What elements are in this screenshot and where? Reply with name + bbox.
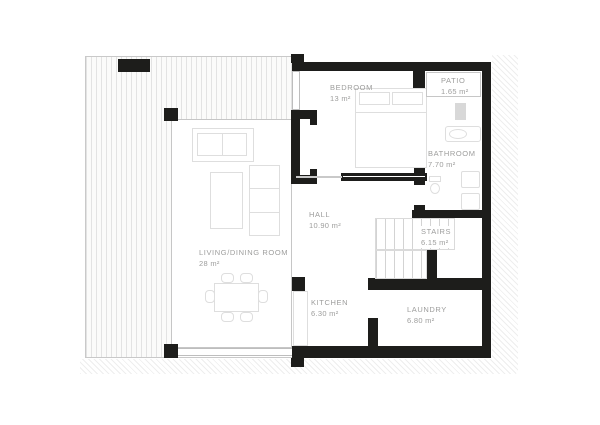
shelf: [249, 165, 280, 236]
wall-bedroom-left: [291, 110, 300, 184]
room-area: 6.30 m²: [311, 308, 348, 319]
kitchen-counter: [293, 291, 308, 346]
floor-plan: LIVING/DINING ROOM 28 m² BEDROOM 13 m² P…: [0, 0, 600, 425]
room-area: 13 m²: [330, 93, 373, 104]
sofa-cushion-divider: [222, 133, 223, 156]
room-area: 6.80 m²: [407, 315, 447, 326]
ground-hatch-right: [492, 55, 518, 373]
dining-chair: [221, 312, 234, 322]
living-room-south-window: [178, 348, 292, 356]
dining-chair: [221, 273, 234, 283]
wall-niche-tip: [310, 169, 317, 175]
sink: [461, 193, 480, 210]
deck-edge: [85, 357, 293, 358]
room-label-bathroom: BATHROOM 7.70 m²: [428, 148, 476, 170]
dining-chair: [240, 312, 253, 322]
deck-column: [164, 108, 178, 121]
sliding-door-track: [296, 176, 342, 178]
wall-right: [482, 62, 491, 358]
sink: [461, 171, 480, 188]
stairs-treads-lower: [375, 250, 427, 279]
deck-edge: [85, 56, 293, 57]
dining-chair: [240, 273, 253, 283]
room-name: STAIRS: [421, 226, 451, 237]
room-name: LIVING/DINING ROOM: [199, 247, 288, 258]
room-label-hall: HALL 10.90 m²: [309, 209, 341, 231]
room-label-bedroom: BEDROOM 13 m²: [330, 82, 373, 104]
wall-kitchen-column: [292, 277, 305, 291]
wall-niche-tip: [310, 119, 317, 125]
deck-column: [164, 344, 178, 358]
room-label-patio: PATIO 1.65 m²: [441, 75, 469, 97]
wall-bottom: [292, 346, 491, 358]
room-label-stairs: STAIRS 6.15 m²: [419, 226, 453, 248]
toilet-bowl: [430, 183, 440, 194]
room-area: 10.90 m²: [309, 220, 341, 231]
room-name: LAUNDRY: [407, 304, 447, 315]
wall-bedroom-left-arm: [291, 110, 317, 119]
rug: [210, 172, 243, 229]
bed-pillow: [392, 92, 423, 105]
room-label-kitchen: KITCHEN 6.30 m²: [311, 297, 348, 319]
shelf-divider: [249, 212, 280, 213]
wall-bottom-foot: [291, 358, 304, 367]
dining-table: [214, 283, 259, 312]
deck-edge: [85, 56, 86, 358]
bedroom-sliding-door: [341, 173, 427, 181]
deck-column: [118, 59, 150, 72]
room-area: 6.15 m²: [421, 237, 451, 248]
wall-stairs-divider: [427, 250, 437, 278]
room-label-living-dining: LIVING/DINING ROOM 28 m²: [199, 247, 288, 269]
dining-chair: [258, 290, 268, 303]
shelf-divider: [249, 188, 280, 189]
room-name: BATHROOM: [428, 148, 476, 159]
room-name: KITCHEN: [311, 297, 348, 308]
wall-stairs-top: [412, 210, 482, 218]
bathtub-basin: [449, 129, 467, 139]
patio-fixture: [455, 103, 466, 120]
toilet-tank: [429, 176, 441, 182]
wall-top: [292, 62, 491, 71]
room-area: 1.65 m²: [441, 86, 469, 97]
room-label-laundry: LAUNDRY 6.80 m²: [407, 304, 447, 326]
wall-kitchen-laundry: [368, 318, 378, 346]
deck-hatch: [86, 57, 171, 358]
bedroom-left-window: [292, 71, 300, 110]
sliding-door-gap: [343, 176, 425, 177]
room-area: 28 m²: [199, 258, 288, 269]
room-name: PATIO: [441, 75, 469, 86]
room-area: 7.70 m²: [428, 159, 476, 170]
room-name: BEDROOM: [330, 82, 373, 93]
wall-laundry-top: [368, 278, 482, 290]
room-name: HALL: [309, 209, 341, 220]
bed-blanket-line: [356, 112, 426, 113]
